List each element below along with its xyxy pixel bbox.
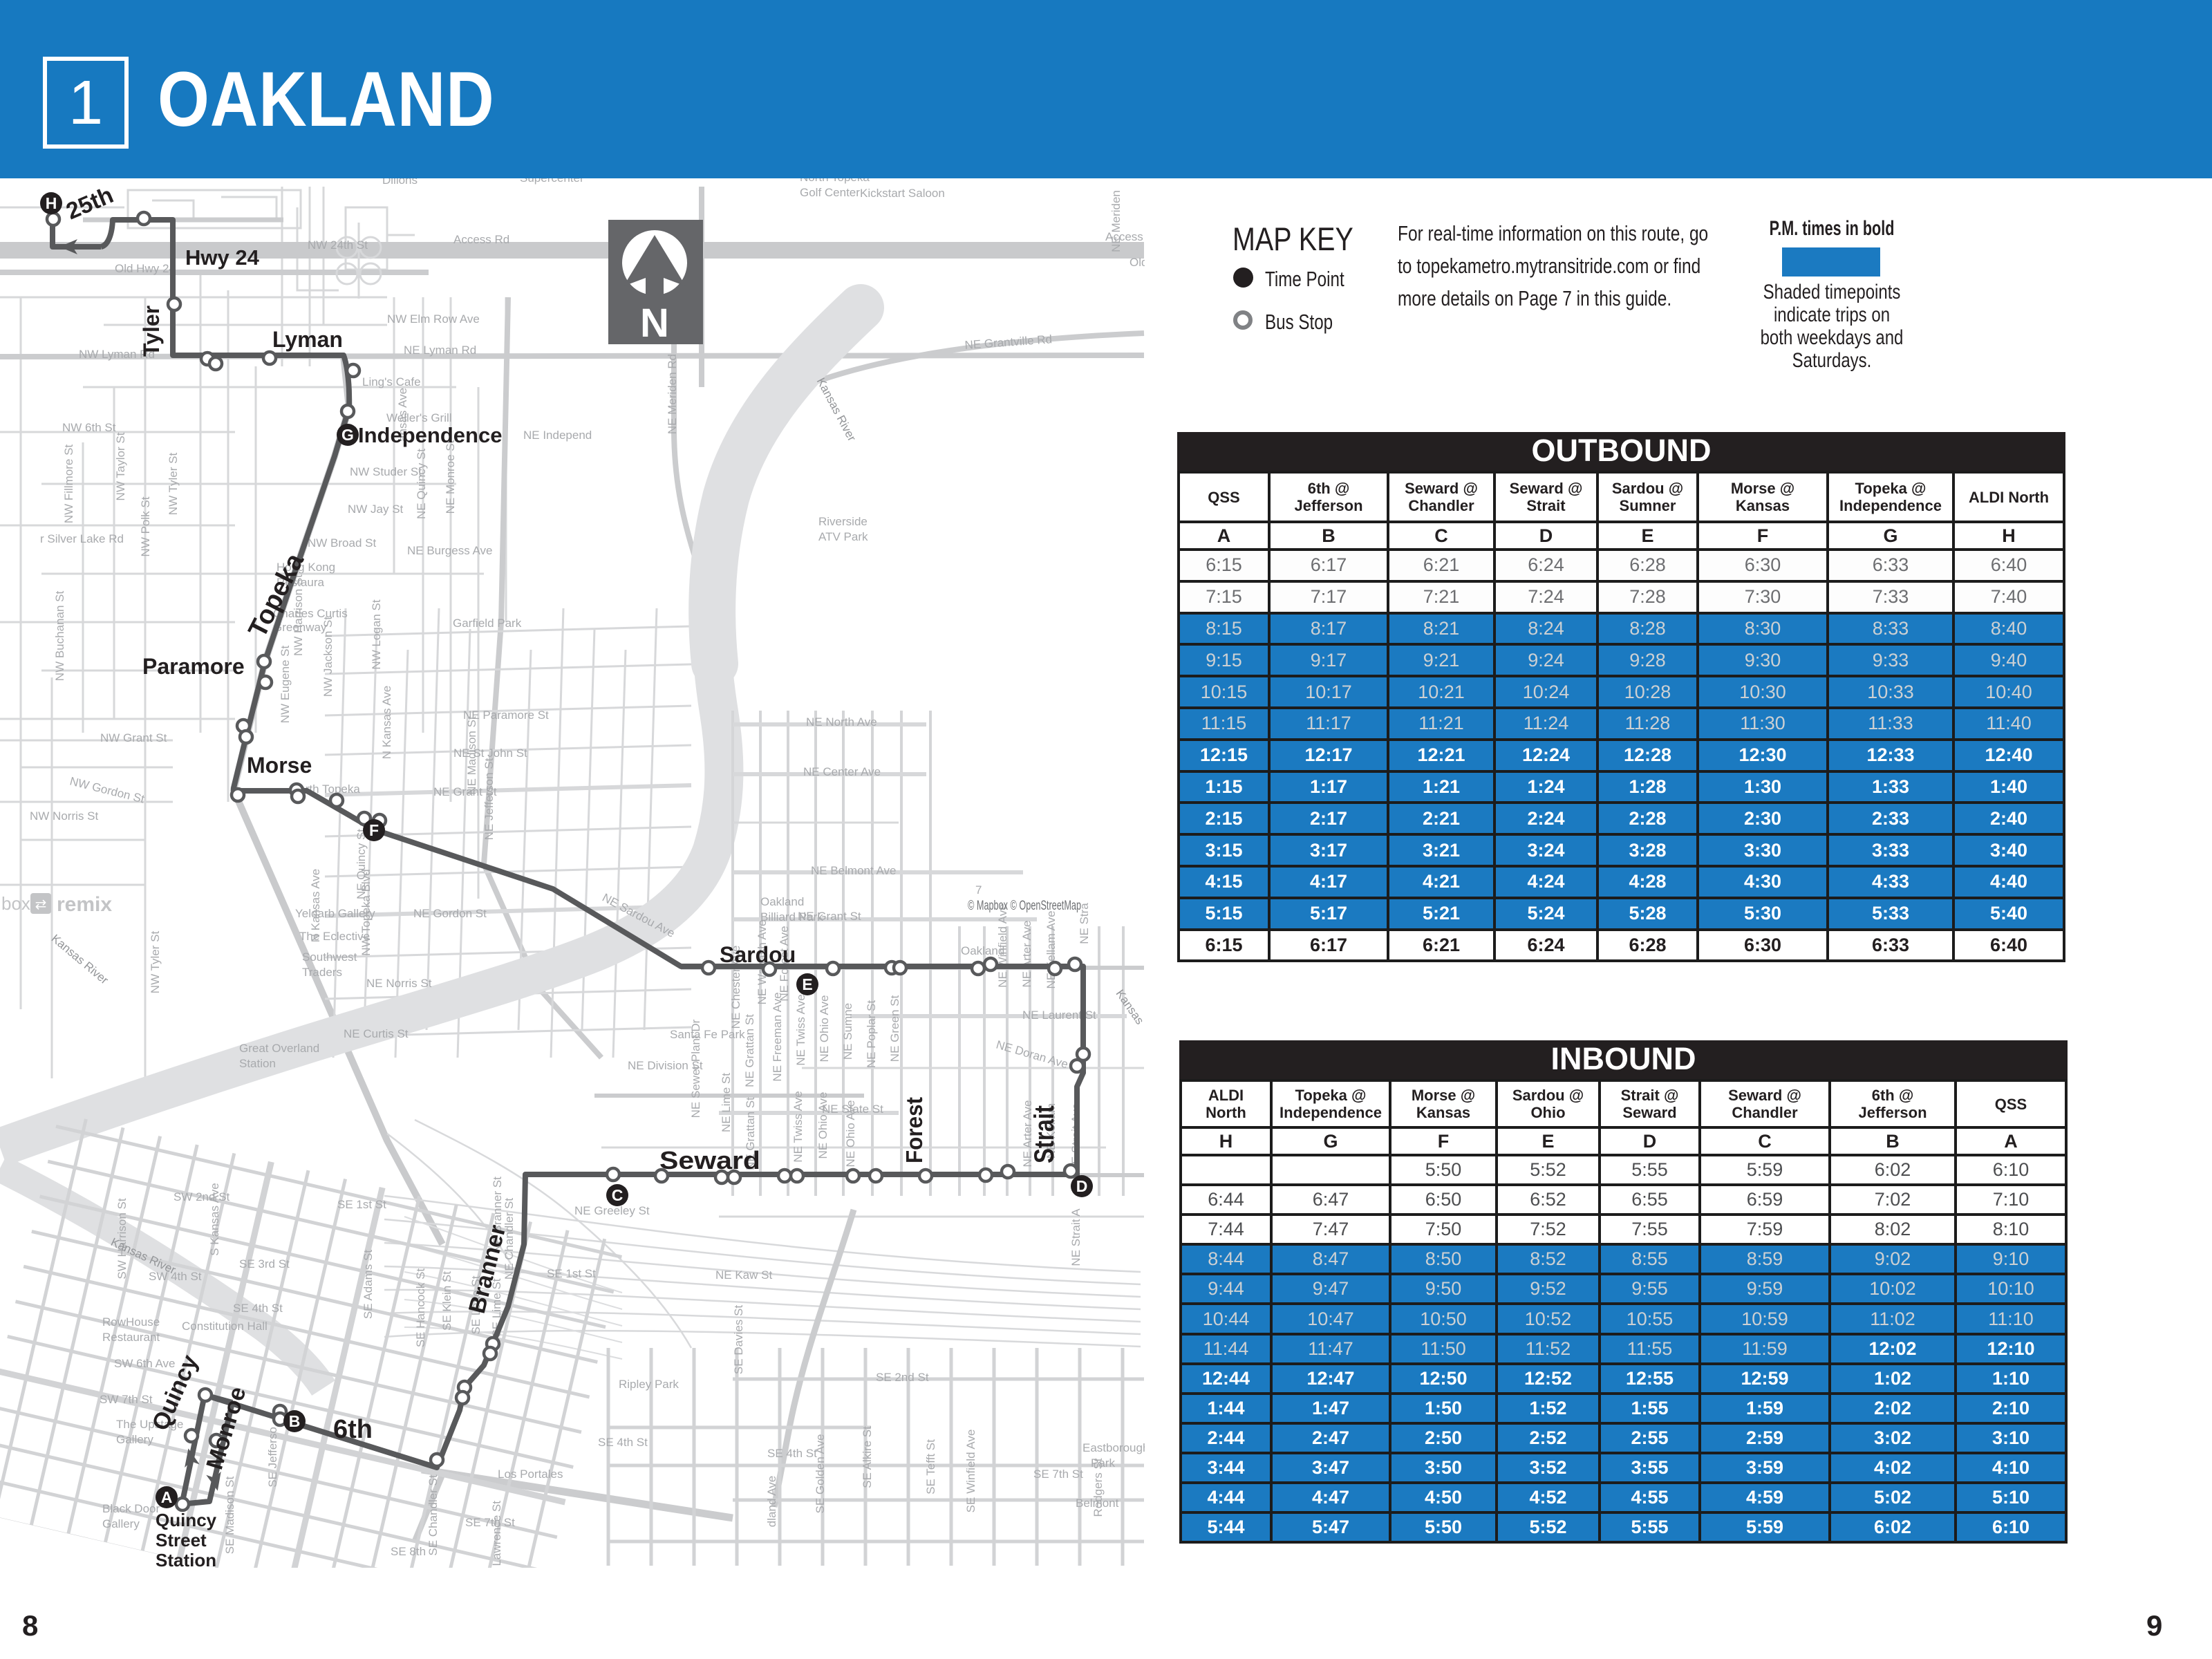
svg-text:Forest: Forest: [901, 1097, 927, 1163]
svg-text:NW Grant St: NW Grant St: [100, 731, 167, 744]
svg-text:NE Kellam Ave: NE Kellam Ave: [1044, 910, 1058, 988]
svg-text:NE Curtis St: NE Curtis St: [344, 1027, 409, 1040]
svg-text:SE 4th St: SE 4th St: [598, 1436, 648, 1449]
svg-text:NE Green St: NE Green St: [888, 995, 901, 1062]
svg-text:NE Strait A: NE Strait A: [1069, 1208, 1082, 1266]
svg-text:NE Belmont Ave: NE Belmont Ave: [811, 864, 896, 877]
svg-text:Kickstart Saloon: Kickstart Saloon: [860, 187, 945, 200]
svg-text:NE Freeman Ave: NE Freeman Ave: [771, 992, 784, 1081]
svg-text:N: N: [640, 301, 669, 346]
svg-text:S Kansas Ave: S Kansas Ave: [208, 1183, 221, 1256]
svg-text:NE Twiss Ave: NE Twiss Ave: [791, 1091, 805, 1162]
svg-text:NW Fillmore St: NW Fillmore St: [62, 444, 75, 524]
svg-text:SE Klein St: SE Klein St: [440, 1271, 453, 1331]
svg-text:NW Jackson St: NW Jackson St: [321, 617, 335, 697]
svg-text:Golf Center: Golf Center: [800, 186, 860, 199]
svg-text:SE Tefft St: SE Tefft St: [924, 1439, 937, 1494]
svg-text:NE Twiss Ave: NE Twiss Ave: [794, 994, 807, 1065]
svg-text:SE 1st St: SE 1st St: [547, 1267, 596, 1280]
svg-text:NE North Ave: NE North Ave: [806, 715, 877, 729]
svg-text:NE Norris St: NE Norris St: [366, 977, 432, 990]
svg-text:SE Adams St: SE Adams St: [362, 1250, 375, 1319]
svg-text:SW 6th Ave: SW 6th Ave: [114, 1357, 176, 1370]
svg-text:NE Quincy St: NE Quincy St: [415, 449, 428, 519]
svg-text:SE 2nd St: SE 2nd St: [876, 1371, 929, 1384]
svg-text:SE Hancock St: SE Hancock St: [414, 1268, 427, 1348]
svg-text:NE Kaw St: NE Kaw St: [715, 1268, 772, 1282]
svg-text:Independence: Independence: [358, 423, 502, 447]
svg-text:Restaurant: Restaurant: [102, 1331, 160, 1344]
svg-text:NE Lyman Rd: NE Lyman Rd: [404, 344, 476, 357]
svg-text:NE Arter Ave: NE Arter Ave: [1020, 920, 1033, 987]
svg-text:NW Norris St: NW Norris St: [30, 809, 98, 823]
svg-text:F: F: [369, 821, 379, 839]
svg-text:NW Tyler St: NW Tyler St: [149, 931, 162, 994]
svg-text:SE 3rd St: SE 3rd St: [239, 1257, 290, 1271]
svg-text:Tyler: Tyler: [139, 306, 164, 357]
svg-text:SE Madison St: SE Madison St: [223, 1477, 236, 1555]
svg-text:SE Chandler St: SE Chandler St: [427, 1474, 440, 1555]
svg-text:NW 6th St: NW 6th St: [62, 421, 116, 434]
svg-text:6th: 6th: [333, 1415, 373, 1444]
svg-text:Lyman: Lyman: [272, 327, 343, 352]
svg-text:SW 4th St: SW 4th St: [149, 1270, 202, 1283]
svg-text:NE Madison St: NE Madison St: [465, 716, 478, 795]
svg-text:Southwest: Southwest: [302, 950, 357, 964]
svg-text:SW 7th St: SW 7th St: [100, 1393, 153, 1406]
svg-text:SE 7th St: SE 7th St: [1033, 1468, 1083, 1481]
svg-text:A: A: [161, 1488, 173, 1506]
svg-text:Eastborough: Eastborough: [1082, 1441, 1149, 1454]
svg-text:NE Meriden Rd: NE Meriden Rd: [666, 354, 679, 434]
svg-text:B: B: [289, 1412, 301, 1430]
svg-text:NE Ohio Ave: NE Ohio Ave: [844, 1100, 857, 1167]
svg-text:Santa Fe Park: Santa Fe Park: [670, 1028, 745, 1041]
svg-text:Gallery: Gallery: [102, 1517, 140, 1530]
svg-text:NE Ohio Ave: NE Ohio Ave: [816, 1091, 829, 1159]
svg-text:NW Logan St: NW Logan St: [370, 599, 383, 669]
svg-text:SE Davies St: SE Davies St: [732, 1305, 745, 1374]
svg-text:Traders: Traders: [302, 966, 342, 979]
svg-text:⇄: ⇄: [35, 897, 47, 912]
svg-text:NW Polk St: NW Polk St: [139, 496, 152, 556]
svg-text:NW Elm Row Ave: NW Elm Row Ave: [387, 312, 480, 326]
svg-text:© Mapbox © OpenStreetMap: © Mapbox © OpenStreetMap: [968, 899, 1081, 913]
svg-text:Great Overland: Great Overland: [239, 1042, 319, 1055]
svg-text:7: 7: [975, 883, 982, 897]
svg-text:NE Center Ave: NE Center Ave: [803, 765, 881, 778]
svg-text:NE Lime St: NE Lime St: [720, 1073, 733, 1132]
svg-text:NE Greeley St: NE Greeley St: [574, 1204, 650, 1217]
svg-text:NW Jay St: NW Jay St: [348, 503, 404, 516]
svg-text:SE Alkire St: SE Alkire St: [861, 1426, 874, 1488]
svg-text:NE Monroe St: NE Monroe St: [444, 440, 457, 514]
svg-text:dland Ave: dland Ave: [765, 1476, 778, 1527]
svg-text:Street: Street: [156, 1530, 207, 1550]
svg-text:N Kansas Ave: N Kansas Ave: [380, 686, 393, 759]
svg-text:Seward: Seward: [659, 1146, 760, 1174]
svg-text:NE Sumne: NE Sumne: [841, 1003, 854, 1060]
svg-text:N Kansas Ave: N Kansas Ave: [309, 869, 322, 942]
svg-text:NE Meriden: NE Meriden: [1109, 190, 1123, 252]
svg-text:remix: remix: [57, 893, 112, 916]
svg-text:SE 1st St: SE 1st St: [337, 1198, 386, 1211]
svg-text:NE Ohio Ave: NE Ohio Ave: [818, 995, 831, 1062]
svg-text:NW Eugene St: NW Eugene St: [279, 646, 292, 724]
svg-text:NW Topeka Blvd: NW Topeka Blvd: [359, 869, 373, 955]
svg-text:NE Burgess Ave: NE Burgess Ave: [407, 544, 492, 557]
svg-text:Quincy: Quincy: [156, 1510, 217, 1530]
svg-text:NW Studer St: NW Studer St: [350, 465, 422, 478]
svg-text:box: box: [1, 893, 30, 914]
svg-text:SE 8th: SE 8th: [391, 1545, 426, 1558]
svg-text:r Silver Lake Rd: r Silver Lake Rd: [40, 532, 124, 545]
svg-text:SW 2nd St: SW 2nd St: [174, 1190, 230, 1203]
svg-text:D: D: [1076, 1177, 1088, 1195]
svg-text:Hwy 24: Hwy 24: [185, 245, 260, 270]
svg-text:Access Rd: Access Rd: [453, 233, 509, 246]
svg-text:Black Door: Black Door: [102, 1502, 160, 1515]
svg-text:Sardou: Sardou: [720, 942, 796, 967]
svg-text:NW Buchanan St: NW Buchanan St: [53, 591, 66, 682]
svg-text:Los Portales: Los Portales: [498, 1468, 563, 1481]
svg-text:NE Jefferson St: NE Jefferson St: [482, 758, 496, 840]
svg-text:NW 24th St: NW 24th St: [308, 238, 368, 252]
svg-text:E: E: [802, 975, 812, 993]
svg-text:Morse: Morse: [247, 753, 312, 778]
svg-text:Billiard Park: Billiard Park: [760, 910, 823, 924]
svg-text:RowHouse: RowHouse: [102, 1315, 160, 1329]
svg-text:Rodgers St: Rodgers St: [1091, 1458, 1105, 1517]
svg-text:Ripley Park: Ripley Park: [619, 1378, 679, 1391]
svg-text:NE Gordon St: NE Gordon St: [413, 907, 487, 920]
svg-text:Old Hwy 24: Old Hwy 24: [115, 262, 176, 275]
svg-text:SE 4th St: SE 4th St: [233, 1302, 283, 1315]
svg-text:SE Winfield Ave: SE Winfield Ave: [964, 1430, 977, 1513]
svg-text:NE Sewer Plant Dr: NE Sewer Plant Dr: [689, 1019, 702, 1118]
svg-text:NE Grattan St: NE Grattan St: [743, 1014, 756, 1087]
svg-text:NW Broad St: NW Broad St: [308, 536, 376, 550]
svg-text:Gallery: Gallery: [116, 1433, 153, 1446]
svg-text:NW Tyler St: NW Tyler St: [167, 453, 180, 516]
svg-text:Garfield Park: Garfield Park: [453, 617, 522, 630]
svg-text:C: C: [612, 1186, 624, 1204]
svg-text:Strait: Strait: [1029, 1105, 1060, 1163]
svg-text:SE Golden Ave: SE Golden Ave: [814, 1434, 827, 1514]
svg-text:NW Taylor St: NW Taylor St: [114, 432, 127, 500]
svg-text:G: G: [341, 426, 354, 444]
svg-text:Paramore: Paramore: [142, 654, 245, 679]
svg-text:Station: Station: [156, 1550, 216, 1571]
svg-text:NE Poplar St: NE Poplar St: [865, 1000, 878, 1069]
svg-text:NE Independ: NE Independ: [523, 429, 592, 442]
svg-text:Oakland: Oakland: [760, 895, 804, 908]
svg-text:Station: Station: [239, 1057, 276, 1070]
svg-text:Ling's Cafe: Ling's Cafe: [362, 375, 421, 388]
svg-text:NE Winfield Ave: NE Winfield Ave: [996, 903, 1009, 988]
svg-text:Constitution Hall: Constitution Hall: [182, 1320, 268, 1333]
svg-text:SE 4th St: SE 4th St: [767, 1447, 817, 1460]
svg-text:SE Jefferso: SE Jefferso: [266, 1427, 279, 1488]
svg-text:ATV Park: ATV Park: [818, 530, 868, 543]
svg-text:Riverside: Riverside: [818, 515, 868, 528]
svg-text:H: H: [46, 194, 57, 212]
